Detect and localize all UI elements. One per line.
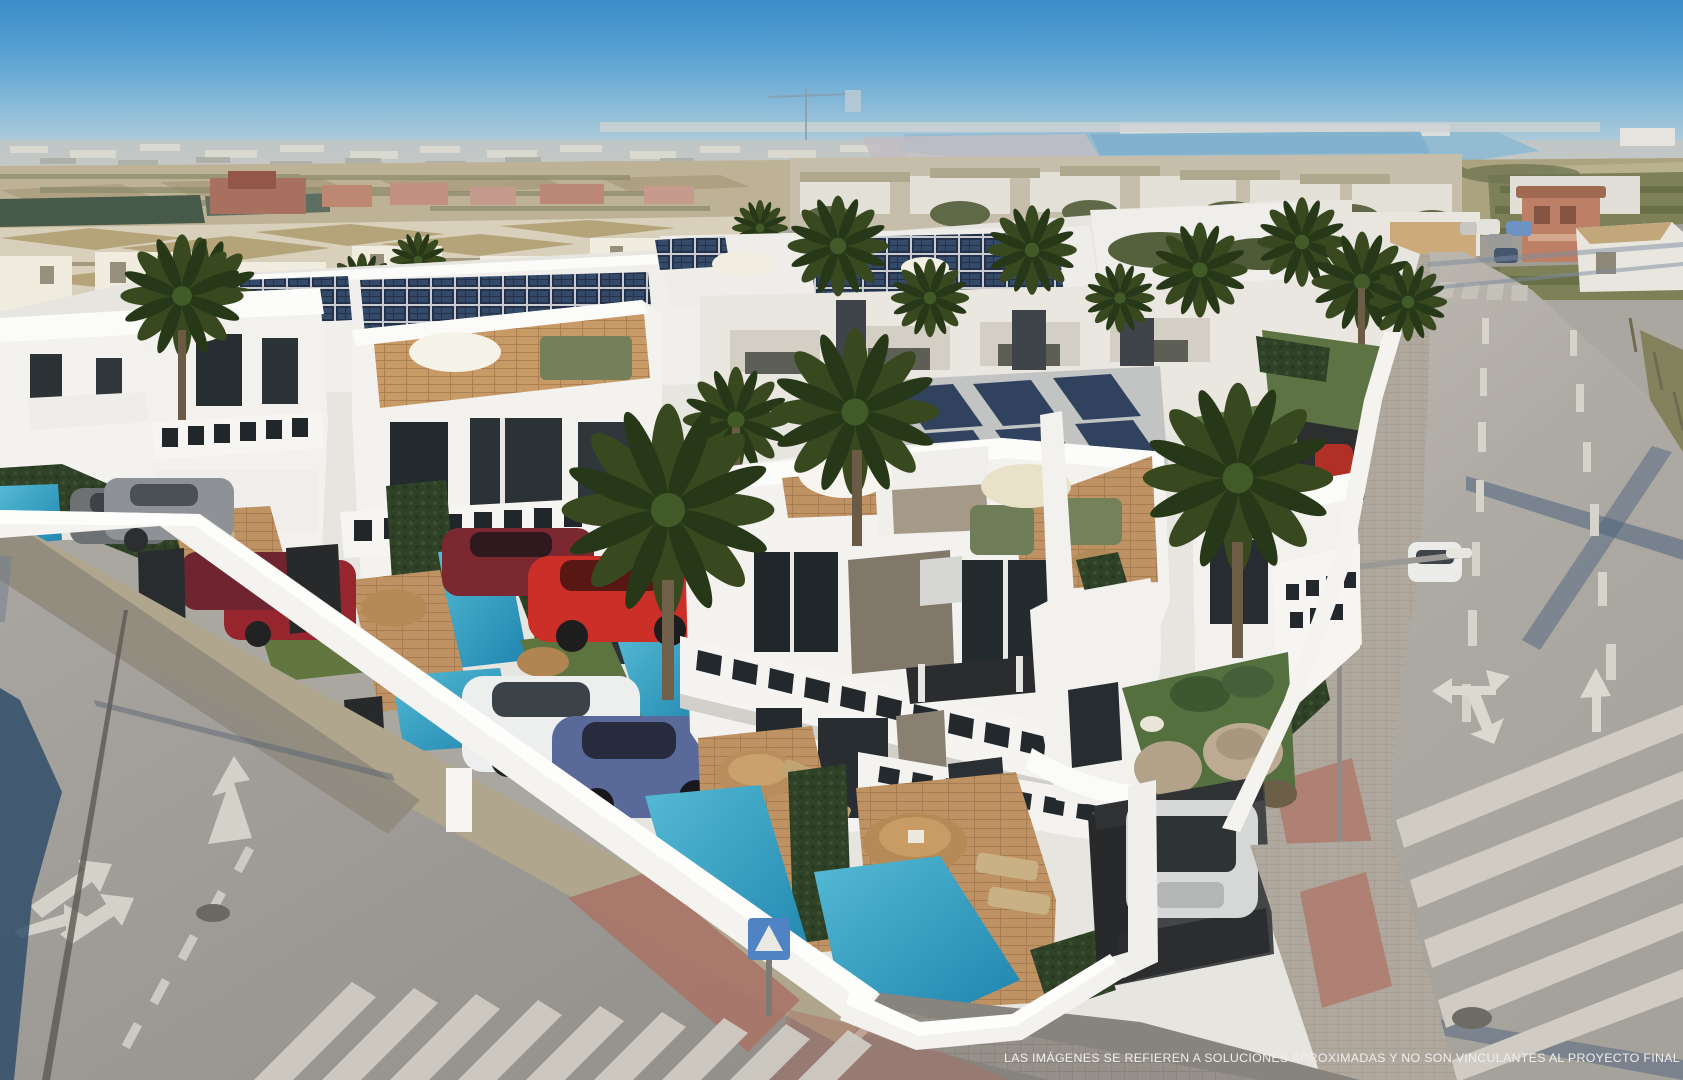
svg-text:LAS IMÁGENES SE REFIEREN A SOL: LAS IMÁGENES SE REFIEREN A SOLUCIONES AP… — [1004, 1050, 1680, 1065]
